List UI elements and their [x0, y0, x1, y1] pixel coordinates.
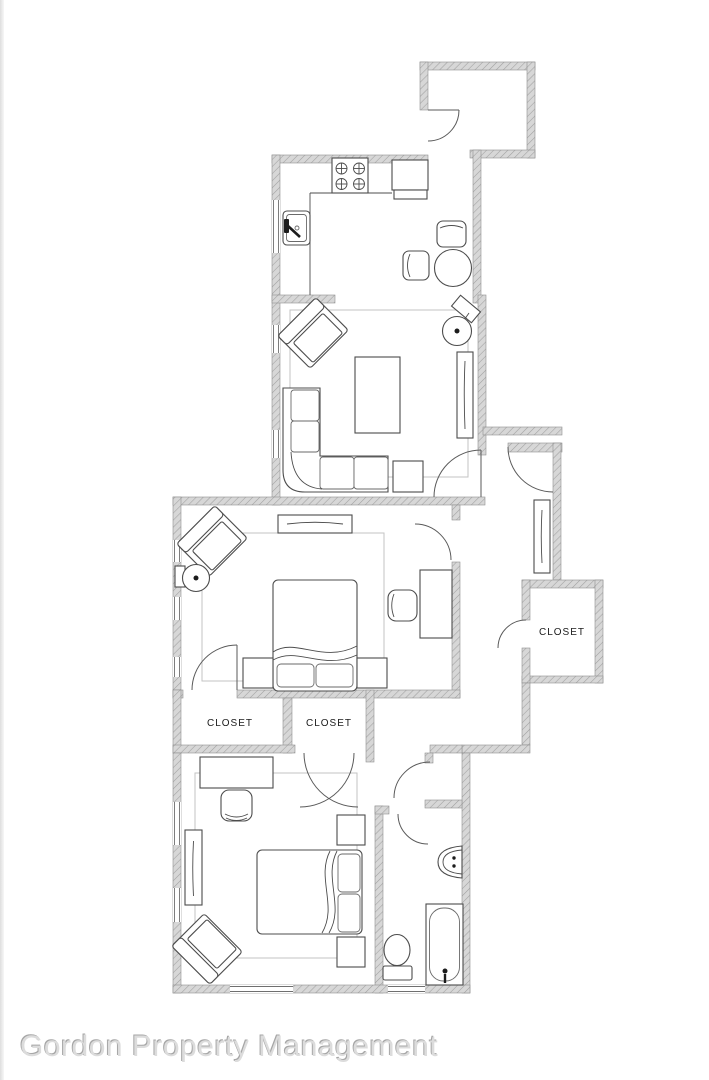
window	[173, 888, 181, 922]
pillow	[277, 664, 314, 687]
toilet	[383, 935, 412, 981]
nightstand	[243, 658, 273, 688]
window	[173, 802, 181, 845]
hallway	[534, 500, 550, 573]
kitchen-counter	[310, 193, 392, 295]
nightstand	[337, 937, 365, 967]
closet-right-label: CLOSET	[306, 718, 352, 729]
armchair	[177, 506, 248, 577]
dining-chair	[437, 221, 466, 247]
pillow	[338, 894, 360, 932]
bathroom	[383, 846, 463, 985]
window	[272, 200, 280, 253]
refrigerator	[392, 160, 428, 199]
middle-bedroom-closet-door	[192, 645, 237, 690]
middle-bedroom	[175, 506, 452, 691]
armchair	[172, 914, 243, 985]
living-room-door	[434, 450, 481, 497]
window	[272, 325, 280, 353]
entry-door	[428, 110, 459, 141]
bathroom-sink	[438, 846, 462, 878]
living-room	[278, 295, 481, 492]
pillow	[338, 854, 360, 892]
coffee-table	[355, 357, 400, 433]
window	[388, 985, 425, 993]
armchair	[278, 298, 349, 369]
stove	[332, 158, 368, 193]
kitchen	[283, 158, 472, 295]
dining-table	[435, 250, 472, 287]
window	[230, 985, 293, 993]
dresser	[185, 830, 202, 905]
floor-lamp	[175, 565, 210, 592]
closet-left-label: CLOSET	[207, 718, 253, 729]
window-console	[278, 515, 352, 533]
bathroom-door	[398, 814, 428, 844]
bathtub	[426, 904, 463, 985]
floor-plan: CLOSET CLOSET CLOSET	[0, 0, 709, 1080]
bed	[257, 850, 362, 934]
hall-cabinet	[534, 500, 550, 573]
end-table	[393, 461, 423, 492]
kitchen-sink	[283, 211, 310, 245]
footer-title: Gordon Property Management	[20, 1030, 438, 1064]
dining-chair	[403, 251, 429, 280]
middle-bedroom-door	[415, 524, 451, 560]
bottom-bedroom-closet-door	[300, 753, 354, 807]
bed	[273, 580, 357, 691]
lower-hall-door	[394, 762, 430, 798]
nightstand	[337, 815, 365, 845]
desk	[200, 757, 273, 788]
bottom-bedroom-door	[304, 753, 358, 807]
pillow	[316, 664, 353, 687]
hall-closet-door	[498, 620, 526, 648]
media-console	[457, 352, 473, 438]
floorplan-page: CLOSET CLOSET CLOSET Gordon Property Man…	[0, 0, 709, 1080]
window	[173, 657, 181, 677]
closet-hall-label: CLOSET	[539, 627, 585, 638]
hallway-door	[508, 447, 553, 492]
window	[173, 597, 181, 620]
desk	[420, 570, 452, 638]
desk-chair	[388, 590, 417, 621]
window	[272, 430, 280, 458]
nightstand	[357, 658, 387, 688]
bottom-bedroom	[172, 757, 365, 984]
desk-chair	[221, 790, 252, 821]
